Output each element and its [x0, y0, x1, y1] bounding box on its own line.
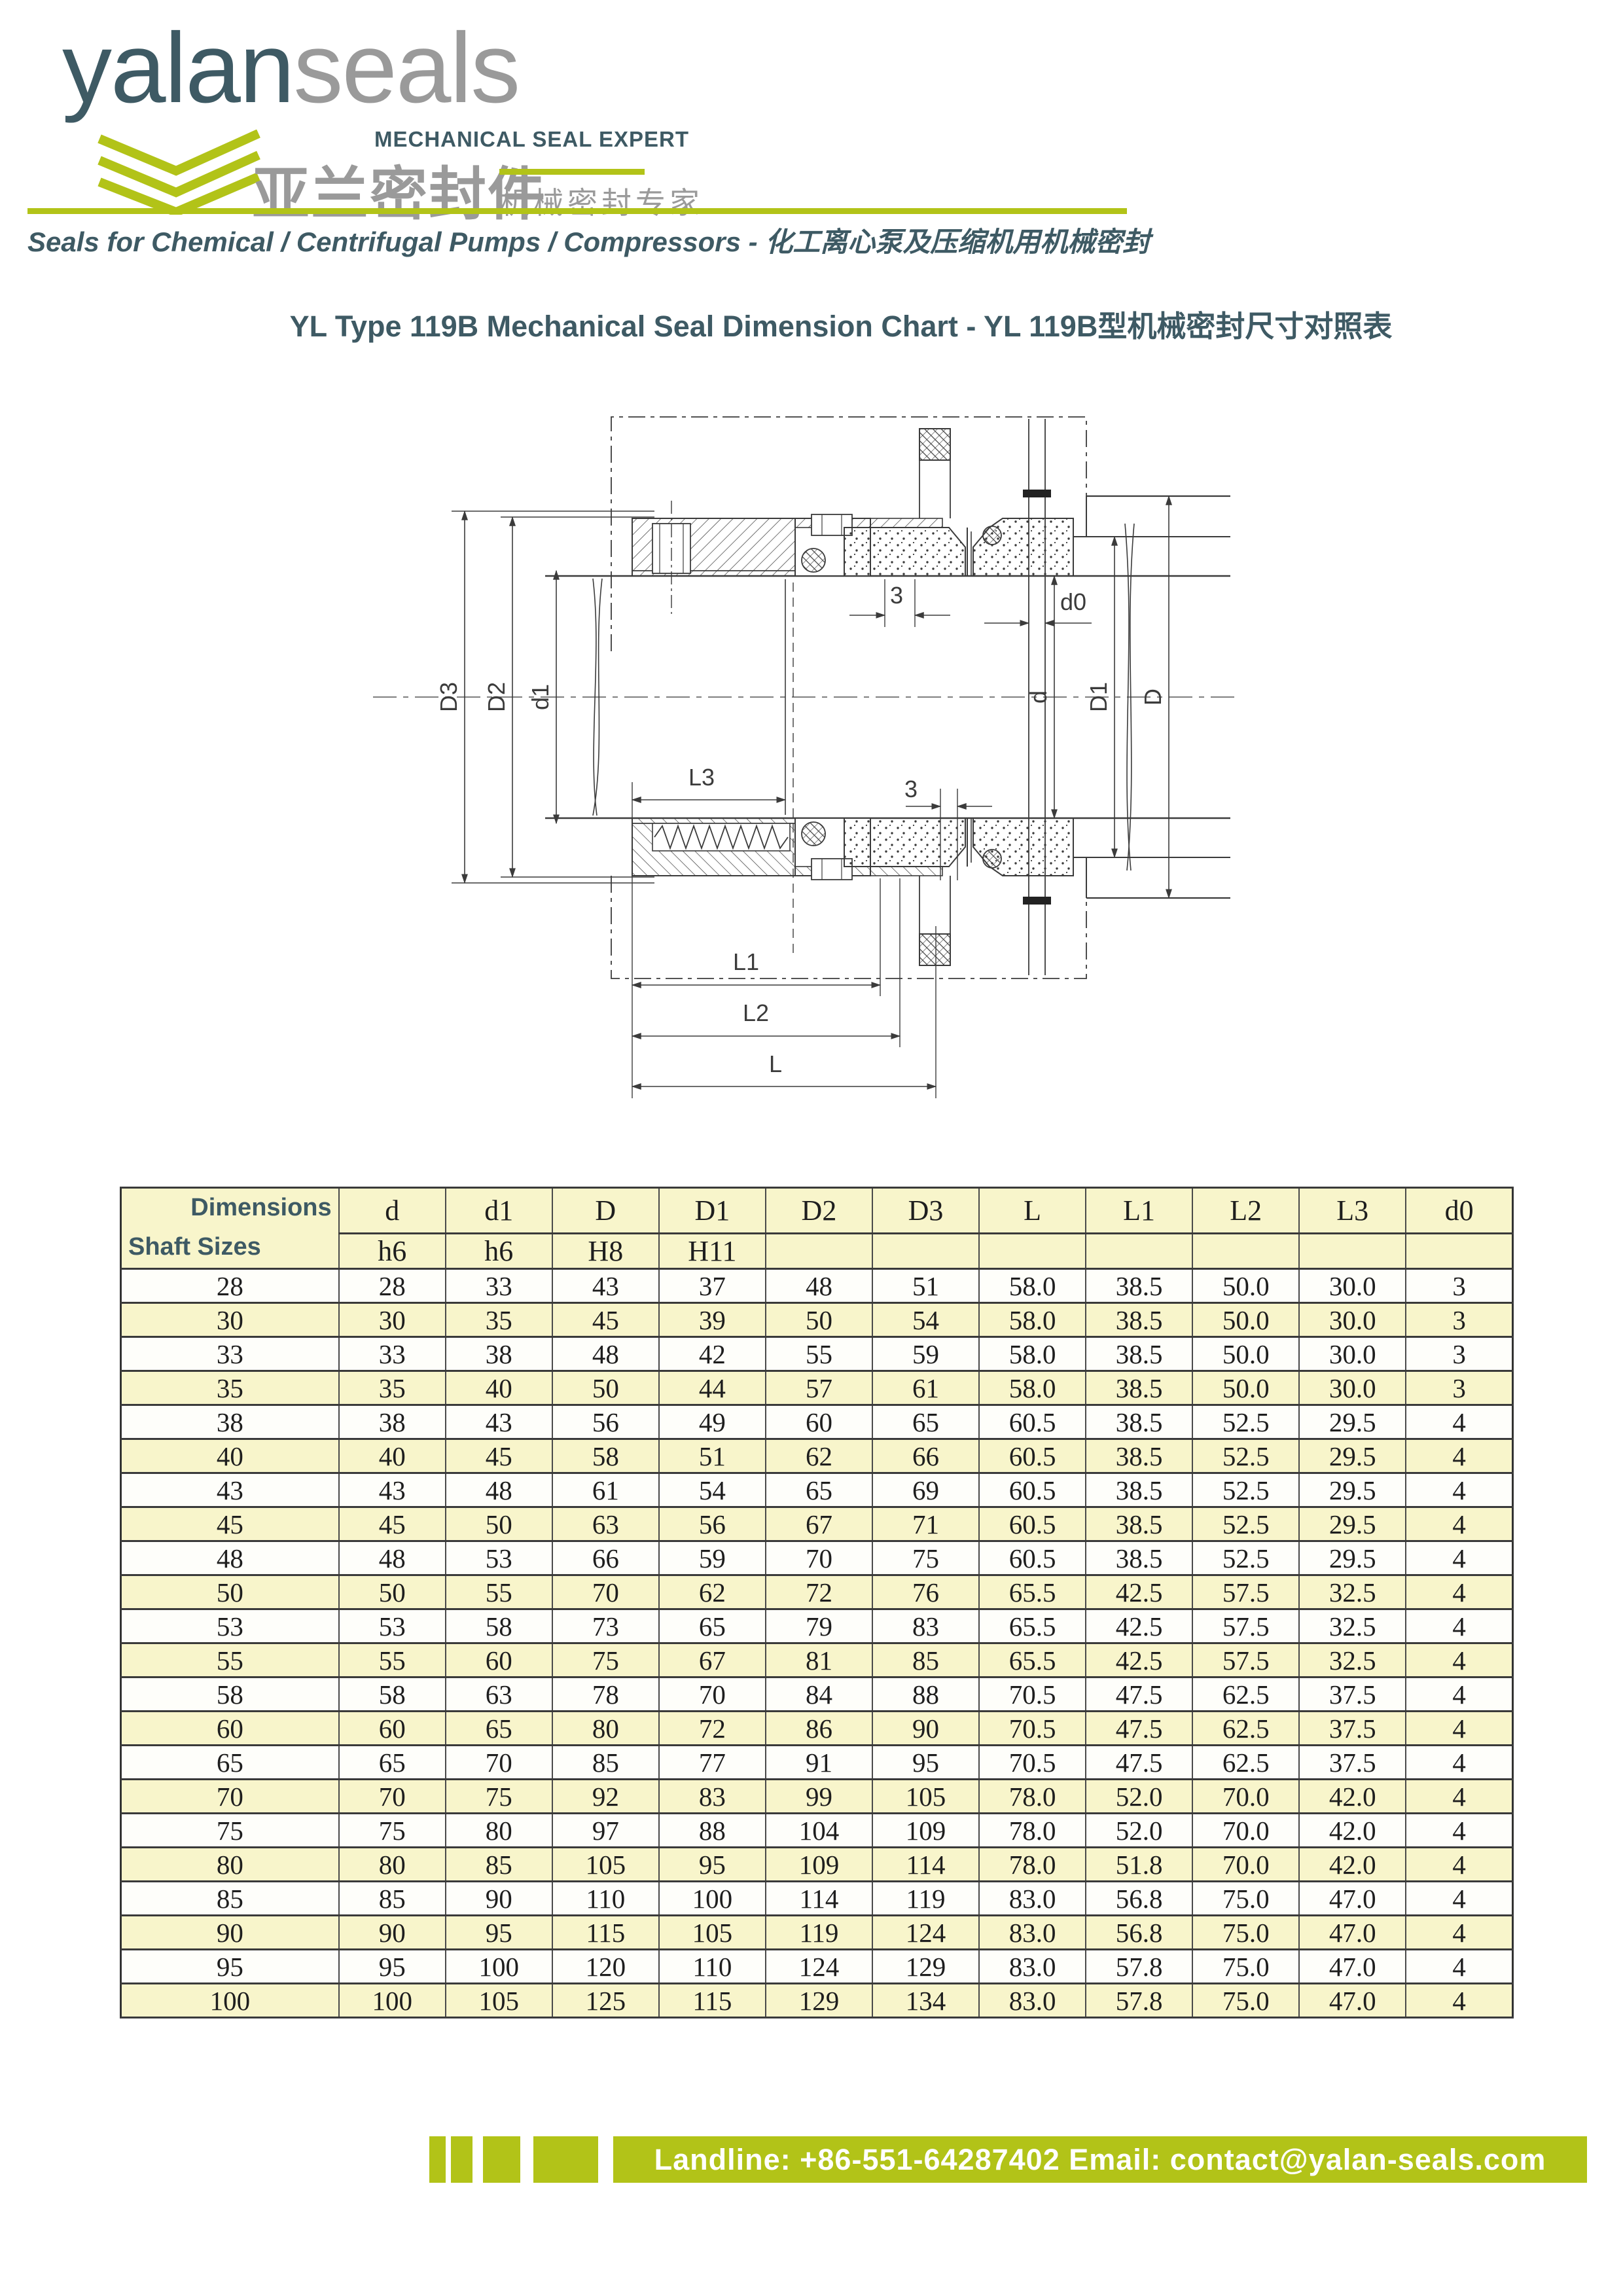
- tolerance-cell: [1406, 1234, 1512, 1269]
- value-cell: 115: [552, 1916, 659, 1950]
- page: { "colors":{ "teal":"#3e5a64", "gray":"#…: [0, 0, 1623, 2296]
- value-cell: 4: [1406, 1882, 1512, 1916]
- table-row: 5050557062727665.542.557.532.54: [121, 1575, 1513, 1609]
- value-cell: 52.0: [1086, 1814, 1192, 1848]
- value-cell: 39: [659, 1303, 766, 1337]
- value-cell: 109: [872, 1814, 979, 1848]
- tolerance-cell: h6: [339, 1234, 446, 1269]
- column-header-d0: d0: [1406, 1188, 1512, 1234]
- shaft-size-cell: 58: [121, 1677, 339, 1712]
- value-cell: 66: [552, 1541, 659, 1575]
- value-cell: 85: [552, 1746, 659, 1780]
- value-cell: 65.5: [979, 1575, 1086, 1609]
- value-cell: 30.0: [1299, 1337, 1406, 1371]
- value-cell: 4: [1406, 1780, 1512, 1814]
- value-cell: 54: [872, 1303, 979, 1337]
- value-cell: 90: [872, 1712, 979, 1746]
- value-cell: 83.0: [979, 1882, 1086, 1916]
- value-cell: 60.5: [979, 1405, 1086, 1439]
- value-cell: 47.5: [1086, 1746, 1192, 1780]
- value-cell: 69: [872, 1473, 979, 1507]
- value-cell: 70: [659, 1677, 766, 1712]
- shaft-size-cell: 33: [121, 1337, 339, 1371]
- value-cell: 48: [766, 1269, 872, 1303]
- value-cell: 4: [1406, 1848, 1512, 1882]
- tolerance-cell: [1299, 1234, 1406, 1269]
- value-cell: 47.0: [1299, 1950, 1406, 1984]
- value-cell: 38.5: [1086, 1337, 1192, 1371]
- value-cell: 70: [552, 1575, 659, 1609]
- value-cell: 50: [339, 1575, 446, 1609]
- column-header-L: L: [979, 1188, 1086, 1234]
- table-row: 5555607567818565.542.557.532.54: [121, 1643, 1513, 1677]
- table-row: 70707592839910578.052.070.042.04: [121, 1780, 1513, 1814]
- value-cell: 52.0: [1086, 1780, 1192, 1814]
- value-cell: 48: [339, 1541, 446, 1575]
- value-cell: 85: [339, 1882, 446, 1916]
- value-cell: 85: [872, 1643, 979, 1677]
- value-cell: 62.5: [1192, 1746, 1299, 1780]
- table-row: 3535405044576158.038.550.030.03: [121, 1371, 1513, 1405]
- dim-label-D: D: [1139, 689, 1166, 706]
- value-cell: 55: [766, 1337, 872, 1371]
- value-cell: 38.5: [1086, 1439, 1192, 1473]
- shaft-size-cell: 70: [121, 1780, 339, 1814]
- value-cell: 3: [1406, 1303, 1512, 1337]
- table-row: 4545506356677160.538.552.529.54: [121, 1507, 1513, 1541]
- value-cell: 47.0: [1299, 1916, 1406, 1950]
- table-row: 4343486154656960.538.552.529.54: [121, 1473, 1513, 1507]
- dim-label-L3: L3: [688, 764, 715, 791]
- value-cell: 42.0: [1299, 1814, 1406, 1848]
- value-cell: 88: [872, 1677, 979, 1712]
- value-cell: 65: [766, 1473, 872, 1507]
- value-cell: 129: [872, 1950, 979, 1984]
- corner-label-dimensions: Dimensions: [190, 1194, 331, 1222]
- value-cell: 50: [446, 1507, 552, 1541]
- value-cell: 80: [446, 1814, 552, 1848]
- value-cell: 38.5: [1086, 1269, 1192, 1303]
- value-cell: 58.0: [979, 1371, 1086, 1405]
- shaft-size-cell: 30: [121, 1303, 339, 1337]
- value-cell: 4: [1406, 1950, 1512, 1984]
- value-cell: 83: [872, 1609, 979, 1643]
- value-cell: 109: [766, 1848, 872, 1882]
- value-cell: 49: [659, 1405, 766, 1439]
- value-cell: 58: [446, 1609, 552, 1643]
- table-row: 6565708577919570.547.562.537.54: [121, 1746, 1513, 1780]
- value-cell: 4: [1406, 1643, 1512, 1677]
- value-cell: 30.0: [1299, 1269, 1406, 1303]
- value-cell: 105: [659, 1916, 766, 1950]
- tolerance-cell: [1086, 1234, 1192, 1269]
- value-cell: 57.5: [1192, 1575, 1299, 1609]
- value-cell: 80: [339, 1848, 446, 1882]
- value-cell: 38.5: [1086, 1303, 1192, 1337]
- value-cell: 129: [766, 1984, 872, 2018]
- table-row: 959510012011012412983.057.875.047.04: [121, 1950, 1513, 1984]
- table-row: 3838435649606560.538.552.529.54: [121, 1405, 1513, 1439]
- value-cell: 85: [446, 1848, 552, 1882]
- footer-stripe: [451, 2136, 473, 2183]
- value-cell: 4: [1406, 1405, 1512, 1439]
- value-cell: 95: [339, 1950, 446, 1984]
- value-cell: 70.0: [1192, 1814, 1299, 1848]
- tolerance-cell: [979, 1234, 1086, 1269]
- value-cell: 60: [339, 1712, 446, 1746]
- value-cell: 63: [446, 1677, 552, 1712]
- shaft-size-cell: 60: [121, 1712, 339, 1746]
- value-cell: 29.5: [1299, 1473, 1406, 1507]
- value-cell: 70.5: [979, 1712, 1086, 1746]
- shaft-size-cell: 53: [121, 1609, 339, 1643]
- value-cell: 29.5: [1299, 1541, 1406, 1575]
- value-cell: 62.5: [1192, 1677, 1299, 1712]
- value-cell: 42.5: [1086, 1609, 1192, 1643]
- value-cell: 4: [1406, 1984, 1512, 2018]
- value-cell: 62: [659, 1575, 766, 1609]
- value-cell: 47.0: [1299, 1984, 1406, 2018]
- value-cell: 56: [552, 1405, 659, 1439]
- value-cell: 65: [659, 1609, 766, 1643]
- value-cell: 83: [659, 1780, 766, 1814]
- column-header-L3: L3: [1299, 1188, 1406, 1234]
- value-cell: 77: [659, 1746, 766, 1780]
- value-cell: 58: [552, 1439, 659, 1473]
- value-cell: 78: [552, 1677, 659, 1712]
- value-cell: 57.5: [1192, 1643, 1299, 1677]
- column-header-L2: L2: [1192, 1188, 1299, 1234]
- value-cell: 4: [1406, 1541, 1512, 1575]
- value-cell: 119: [766, 1916, 872, 1950]
- value-cell: 42.0: [1299, 1848, 1406, 1882]
- column-header-d: d: [339, 1188, 446, 1234]
- tolerance-cell: [872, 1234, 979, 1269]
- value-cell: 114: [872, 1848, 979, 1882]
- value-cell: 3: [1406, 1269, 1512, 1303]
- dim-label-3: 3: [904, 776, 918, 802]
- value-cell: 119: [872, 1882, 979, 1916]
- shaft-size-cell: 48: [121, 1541, 339, 1575]
- value-cell: 76: [872, 1575, 979, 1609]
- tolerance-cell: [1192, 1234, 1299, 1269]
- value-cell: 45: [339, 1507, 446, 1541]
- value-cell: 33: [339, 1337, 446, 1371]
- value-cell: 53: [339, 1609, 446, 1643]
- value-cell: 65.5: [979, 1609, 1086, 1643]
- value-cell: 60.5: [979, 1507, 1086, 1541]
- table-row: 8080851059510911478.051.870.042.04: [121, 1848, 1513, 1882]
- value-cell: 55: [339, 1643, 446, 1677]
- value-cell: 38.5: [1086, 1541, 1192, 1575]
- value-cell: 70: [339, 1780, 446, 1814]
- shaft-size-cell: 75: [121, 1814, 339, 1848]
- column-header-D1: D1: [659, 1188, 766, 1234]
- table-row: 6060658072869070.547.562.537.54: [121, 1712, 1513, 1746]
- value-cell: 3: [1406, 1371, 1512, 1405]
- value-cell: 59: [872, 1337, 979, 1371]
- dim-label-D1: D1: [1085, 682, 1112, 712]
- value-cell: 4: [1406, 1916, 1512, 1950]
- value-cell: 60: [766, 1405, 872, 1439]
- value-cell: 38.5: [1086, 1371, 1192, 1405]
- shaft-size-cell: 80: [121, 1848, 339, 1882]
- tolerance-cell: [766, 1234, 872, 1269]
- dim-label-L: L: [769, 1050, 782, 1077]
- value-cell: 52.5: [1192, 1507, 1299, 1541]
- dim-label-d0: d0: [1060, 588, 1086, 615]
- value-cell: 33: [446, 1269, 552, 1303]
- shaft-size-cell: 43: [121, 1473, 339, 1507]
- value-cell: 67: [766, 1507, 872, 1541]
- value-cell: 92: [552, 1780, 659, 1814]
- value-cell: 91: [766, 1746, 872, 1780]
- value-cell: 30.0: [1299, 1303, 1406, 1337]
- value-cell: 35: [339, 1371, 446, 1405]
- value-cell: 37.5: [1299, 1746, 1406, 1780]
- value-cell: 88: [659, 1814, 766, 1848]
- column-header-L1: L1: [1086, 1188, 1192, 1234]
- shaft-size-cell: 40: [121, 1439, 339, 1473]
- value-cell: 52.5: [1192, 1439, 1299, 1473]
- table-row: 3030354539505458.038.550.030.03: [121, 1303, 1513, 1337]
- value-cell: 110: [659, 1950, 766, 1984]
- value-cell: 62.5: [1192, 1712, 1299, 1746]
- shaft-size-cell: 28: [121, 1269, 339, 1303]
- value-cell: 72: [766, 1575, 872, 1609]
- value-cell: 95: [659, 1848, 766, 1882]
- table-row: 85859011010011411983.056.875.047.04: [121, 1882, 1513, 1916]
- value-cell: 114: [766, 1882, 872, 1916]
- value-cell: 50.0: [1192, 1269, 1299, 1303]
- dimension-table: Dimensions Shaft Sizes dd1DD1D2D3LL1L2L3…: [120, 1187, 1514, 2018]
- corner-label-shaft-sizes: Shaft Sizes: [128, 1233, 261, 1261]
- value-cell: 75.0: [1192, 1950, 1299, 1984]
- shaft-size-cell: 55: [121, 1643, 339, 1677]
- value-cell: 4: [1406, 1814, 1512, 1848]
- shaft-size-cell: 50: [121, 1575, 339, 1609]
- value-cell: 50: [766, 1303, 872, 1337]
- value-cell: 78.0: [979, 1848, 1086, 1882]
- value-cell: 59: [659, 1541, 766, 1575]
- table-row: 3333384842555958.038.550.030.03: [121, 1337, 1513, 1371]
- value-cell: 73: [552, 1609, 659, 1643]
- dim-label-d1: d1: [527, 684, 554, 710]
- value-cell: 65: [446, 1712, 552, 1746]
- value-cell: 75: [446, 1780, 552, 1814]
- value-cell: 75.0: [1192, 1984, 1299, 2018]
- value-cell: 124: [766, 1950, 872, 1984]
- value-cell: 56.8: [1086, 1882, 1192, 1916]
- shaft-size-cell: 90: [121, 1916, 339, 1950]
- shaft-size-cell: 100: [121, 1984, 339, 2018]
- value-cell: 100: [339, 1984, 446, 2018]
- value-cell: 75: [552, 1643, 659, 1677]
- value-cell: 57: [766, 1371, 872, 1405]
- shaft-size-cell: 85: [121, 1882, 339, 1916]
- value-cell: 50: [552, 1371, 659, 1405]
- dim-label-L1: L1: [733, 948, 759, 975]
- table-row: 5353587365798365.542.557.532.54: [121, 1609, 1513, 1643]
- value-cell: 32.5: [1299, 1643, 1406, 1677]
- value-cell: 4: [1406, 1746, 1512, 1780]
- column-header-D2: D2: [766, 1188, 872, 1234]
- table-row: 10010010512511512913483.057.875.047.04: [121, 1984, 1513, 2018]
- value-cell: 70.5: [979, 1677, 1086, 1712]
- value-cell: 38.5: [1086, 1473, 1192, 1507]
- value-cell: 70: [446, 1746, 552, 1780]
- tolerance-cell: H8: [552, 1234, 659, 1269]
- value-cell: 104: [766, 1814, 872, 1848]
- value-cell: 120: [552, 1950, 659, 1984]
- value-cell: 83.0: [979, 1984, 1086, 2018]
- value-cell: 65: [872, 1405, 979, 1439]
- value-cell: 35: [446, 1303, 552, 1337]
- value-cell: 95: [872, 1746, 979, 1780]
- value-cell: 42.5: [1086, 1643, 1192, 1677]
- value-cell: 47.5: [1086, 1712, 1192, 1746]
- value-cell: 42.5: [1086, 1575, 1192, 1609]
- value-cell: 75.0: [1192, 1916, 1299, 1950]
- value-cell: 51: [659, 1439, 766, 1473]
- value-cell: 65: [339, 1746, 446, 1780]
- value-cell: 4: [1406, 1473, 1512, 1507]
- value-cell: 75: [339, 1814, 446, 1848]
- value-cell: 29.5: [1299, 1507, 1406, 1541]
- value-cell: 72: [659, 1712, 766, 1746]
- table-row: 4040455851626660.538.552.529.54: [121, 1439, 1513, 1473]
- value-cell: 65.5: [979, 1643, 1086, 1677]
- value-cell: 40: [339, 1439, 446, 1473]
- shaft-size-cell: 95: [121, 1950, 339, 1984]
- value-cell: 86: [766, 1712, 872, 1746]
- value-cell: 38.5: [1086, 1405, 1192, 1439]
- value-cell: 71: [872, 1507, 979, 1541]
- footer-contact-bar: Landline: +86-551-64287402 Email: contac…: [613, 2136, 1587, 2183]
- value-cell: 38.5: [1086, 1507, 1192, 1541]
- value-cell: 83.0: [979, 1916, 1086, 1950]
- value-cell: 50.0: [1192, 1371, 1299, 1405]
- value-cell: 115: [659, 1984, 766, 2018]
- value-cell: 81: [766, 1643, 872, 1677]
- value-cell: 47.5: [1086, 1677, 1192, 1712]
- table-row: 90909511510511912483.056.875.047.04: [121, 1916, 1513, 1950]
- footer-stripe: [483, 2136, 520, 2183]
- value-cell: 32.5: [1299, 1575, 1406, 1609]
- shaft-size-cell: 38: [121, 1405, 339, 1439]
- value-cell: 110: [552, 1882, 659, 1916]
- value-cell: 105: [552, 1848, 659, 1882]
- value-cell: 52.5: [1192, 1473, 1299, 1507]
- table-corner-cell: Dimensions Shaft Sizes: [121, 1188, 339, 1269]
- value-cell: 37.5: [1299, 1677, 1406, 1712]
- value-cell: 78.0: [979, 1780, 1086, 1814]
- value-cell: 51.8: [1086, 1848, 1192, 1882]
- column-header-d1: d1: [446, 1188, 552, 1234]
- value-cell: 57.8: [1086, 1950, 1192, 1984]
- value-cell: 50.0: [1192, 1337, 1299, 1371]
- value-cell: 52.5: [1192, 1405, 1299, 1439]
- value-cell: 58: [339, 1677, 446, 1712]
- value-cell: 28: [339, 1269, 446, 1303]
- value-cell: 55: [446, 1575, 552, 1609]
- value-cell: 97: [552, 1814, 659, 1848]
- value-cell: 56.8: [1086, 1916, 1192, 1950]
- value-cell: 43: [339, 1473, 446, 1507]
- column-header-D: D: [552, 1188, 659, 1234]
- tolerance-cell: H11: [659, 1234, 766, 1269]
- value-cell: 37: [659, 1269, 766, 1303]
- value-cell: 56: [659, 1507, 766, 1541]
- value-cell: 42.0: [1299, 1780, 1406, 1814]
- value-cell: 105: [446, 1984, 552, 2018]
- shaft-size-cell: 65: [121, 1746, 339, 1780]
- value-cell: 48: [552, 1337, 659, 1371]
- value-cell: 61: [872, 1371, 979, 1405]
- value-cell: 45: [552, 1303, 659, 1337]
- value-cell: 48: [446, 1473, 552, 1507]
- tolerance-cell: h6: [446, 1234, 552, 1269]
- value-cell: 58.0: [979, 1303, 1086, 1337]
- footer-stripe: [429, 2136, 446, 2183]
- value-cell: 60: [446, 1643, 552, 1677]
- value-cell: 58.0: [979, 1337, 1086, 1371]
- value-cell: 67: [659, 1643, 766, 1677]
- value-cell: 83.0: [979, 1950, 1086, 1984]
- value-cell: 58.0: [979, 1269, 1086, 1303]
- value-cell: 75: [872, 1541, 979, 1575]
- value-cell: 4: [1406, 1507, 1512, 1541]
- value-cell: 66: [872, 1439, 979, 1473]
- value-cell: 37.5: [1299, 1712, 1406, 1746]
- value-cell: 84: [766, 1677, 872, 1712]
- value-cell: 78.0: [979, 1814, 1086, 1848]
- table-row: 4848536659707560.538.552.529.54: [121, 1541, 1513, 1575]
- value-cell: 124: [872, 1916, 979, 1950]
- value-cell: 50.0: [1192, 1303, 1299, 1337]
- table-row: 757580978810410978.052.070.042.04: [121, 1814, 1513, 1848]
- value-cell: 62: [766, 1439, 872, 1473]
- column-header-D3: D3: [872, 1188, 979, 1234]
- value-cell: 70.5: [979, 1746, 1086, 1780]
- value-cell: 4: [1406, 1439, 1512, 1473]
- footer-stripe: [533, 2136, 598, 2183]
- dim-label-d: d: [1025, 691, 1052, 704]
- value-cell: 30: [339, 1303, 446, 1337]
- value-cell: 4: [1406, 1609, 1512, 1643]
- shaft-size-cell: 35: [121, 1371, 339, 1405]
- value-cell: 54: [659, 1473, 766, 1507]
- value-cell: 99: [766, 1780, 872, 1814]
- value-cell: 79: [766, 1609, 872, 1643]
- value-cell: 40: [446, 1371, 552, 1405]
- value-cell: 61: [552, 1473, 659, 1507]
- table-row: 5858637870848870.547.562.537.54: [121, 1677, 1513, 1712]
- value-cell: 47.0: [1299, 1882, 1406, 1916]
- value-cell: 75.0: [1192, 1882, 1299, 1916]
- value-cell: 70.0: [1192, 1780, 1299, 1814]
- value-cell: 29.5: [1299, 1405, 1406, 1439]
- value-cell: 100: [446, 1950, 552, 1984]
- value-cell: 63: [552, 1507, 659, 1541]
- dim-label-D2: D2: [483, 682, 510, 712]
- dim-label-D3: D3: [435, 682, 462, 712]
- value-cell: 52.5: [1192, 1541, 1299, 1575]
- value-cell: 80: [552, 1712, 659, 1746]
- dim-label-3: 3: [890, 582, 903, 609]
- value-cell: 60.5: [979, 1439, 1086, 1473]
- value-cell: 43: [552, 1269, 659, 1303]
